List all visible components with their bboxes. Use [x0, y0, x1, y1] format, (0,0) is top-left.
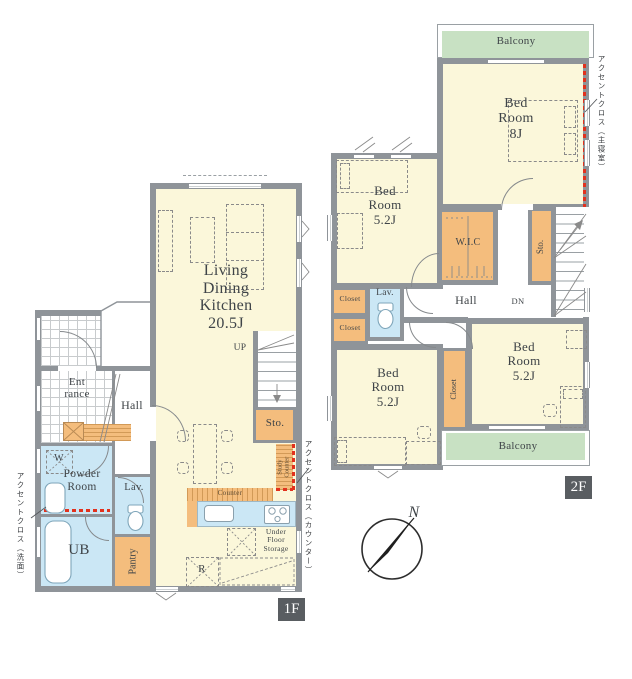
window [354, 154, 374, 159]
chair-se [543, 404, 557, 417]
label-pantry: Pantry [114, 538, 152, 584]
window [327, 396, 333, 421]
window [36, 527, 41, 557]
label-up: UP [228, 343, 252, 353]
low-table [190, 217, 215, 263]
kitchen-sink [204, 505, 234, 522]
dining-chair [221, 430, 233, 442]
label-washer: W [48, 453, 70, 464]
kitchen-stove [264, 505, 290, 524]
label-under-floor-storage: Under Floor Storage [254, 528, 298, 553]
label-ub: UB [58, 542, 100, 559]
label-entrance: Ent rance [48, 376, 106, 400]
eave-dashed-line [183, 175, 267, 176]
label-lav-1f: Lav. [118, 482, 150, 494]
sofa-line [226, 232, 264, 233]
chair-sw [417, 426, 431, 439]
accent-cross-master-line [583, 64, 586, 207]
floor2-label: 2F [565, 476, 592, 499]
pillow [563, 389, 583, 399]
annotation-accent-master: アクセントクロス（主寝室） [596, 55, 607, 225]
pillow [564, 133, 576, 155]
pillow [337, 440, 347, 463]
window [36, 449, 41, 473]
floor-plan-page: Living Dining Kitchen 20.5J Ent rance Ha… [0, 0, 632, 679]
label-sto-1f: Sto. [258, 417, 292, 429]
floor1-label: 1F [278, 598, 305, 621]
label-bedroom-52-sw: Bed Room 5.2J [346, 366, 430, 409]
label-hall-2f: Hall [440, 294, 492, 307]
sofa-line [226, 260, 264, 261]
window [374, 465, 402, 470]
wall [115, 534, 150, 537]
window [584, 362, 590, 388]
dining-table [193, 424, 217, 484]
under-floor-storage-box [227, 528, 256, 556]
desk-se [566, 330, 587, 349]
label-hall-1f: Hall [112, 399, 152, 412]
window [156, 586, 178, 592]
kitchen-counter-side [187, 501, 197, 527]
stairs-1f-treads [258, 352, 296, 407]
window [584, 140, 590, 166]
label-refrigerator: R [188, 563, 216, 575]
window [281, 586, 295, 592]
label-closet-1: Closet [332, 295, 368, 303]
label-sto-2f: Sto. [531, 222, 551, 272]
desk-sw [406, 441, 441, 465]
label-lav-2f: Lav. [369, 288, 401, 298]
window [36, 386, 41, 411]
annotation-accent-washroom: アクセントクロス（洗面） [15, 472, 26, 617]
label-powder: Powder Room [50, 468, 114, 493]
window [189, 183, 261, 189]
label-ldk: Living Dining Kitchen 20.5J [166, 262, 286, 332]
label-wic: W.I.C [442, 237, 494, 248]
window [36, 318, 41, 340]
stairs-2f-treads [556, 214, 584, 314]
annotation-accent-counter: アクセントクロス（カウンター） [303, 440, 314, 615]
accent-cross-washroom-line [44, 509, 110, 512]
window [584, 100, 590, 126]
label-dn: DN [506, 297, 530, 306]
label-bedroom-8j: Bed Room 8J [476, 96, 556, 142]
label-bedroom-52-se: Bed Room 5.2J [482, 340, 566, 383]
label-study-counter: Study Counter [270, 444, 296, 490]
label-counter: Counter [187, 490, 273, 498]
compass-icon [362, 518, 422, 579]
dining-chair [221, 462, 233, 474]
shoe-box [63, 422, 84, 441]
pillow [564, 106, 576, 128]
label-bedroom-52-nw: Bed Room 5.2J [345, 184, 425, 227]
label-closet-2: Closet [332, 324, 368, 332]
window [488, 59, 544, 64]
window [489, 425, 545, 430]
dining-chair [177, 462, 189, 474]
window [391, 154, 411, 159]
window [584, 288, 590, 312]
door-arc [406, 287, 433, 314]
label-closet-center: Closet [443, 364, 466, 414]
label-balcony-bottom: Balcony [468, 440, 568, 452]
label-balcony-top: Balcony [466, 35, 566, 47]
window [296, 259, 302, 287]
window [296, 216, 302, 242]
compass-north-label: N [402, 504, 426, 522]
canopy-cutout [101, 308, 150, 318]
shoe-bench [84, 424, 131, 441]
window [327, 215, 333, 241]
